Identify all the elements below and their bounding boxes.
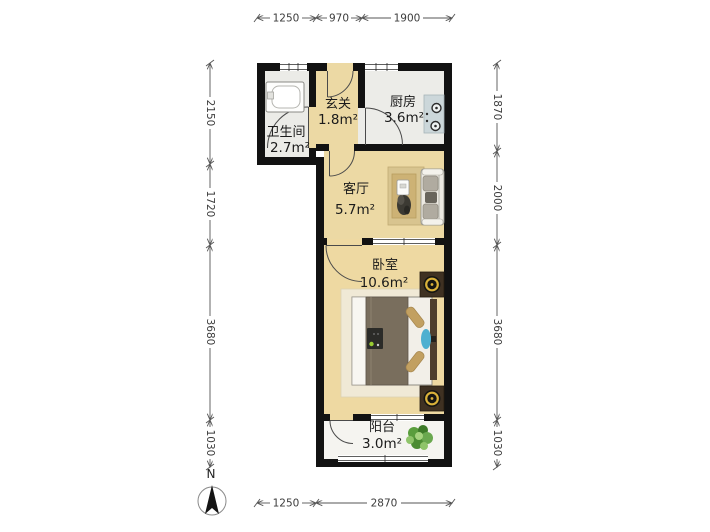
bed [352,297,437,385]
dim-left-3: 1030 [204,430,216,457]
dim-left-0: 2150 [204,100,216,127]
room-label-kitchen: 厨房 [390,94,416,110]
dim-left-2: 3680 [204,319,216,346]
dim-bottom-1: 2870 [371,498,398,510]
dim-right-3: 1030 [491,430,503,457]
floorplan-page: 卫生间 2.7m² 玄关 1.8m² 厨房 3.6m² 客厅 5.7m² 卧室 … [0,0,710,532]
dim-left-1: 1720 [204,191,216,218]
room-area-bedroom: 10.6m² [360,275,409,291]
kitchen-window [365,63,398,71]
bed-tray [367,328,383,349]
room-area-balcony: 3.0m² [362,436,402,452]
floorplan-svg: 卫生间 2.7m² 玄关 1.8m² 厨房 3.6m² 客厅 5.7m² 卧室 … [0,0,710,532]
nightstand-bottom [420,386,444,411]
dim-right-1: 2000 [491,185,503,212]
room-area-bathroom: 2.7m² [270,140,310,156]
room-label-living: 客厅 [343,181,369,197]
dimension-top: 1250 970 1900 [254,13,455,25]
lamp-icon [424,390,441,407]
entry-door-threshold [327,63,353,71]
room-area-living: 5.7m² [335,202,375,218]
room-area-entry: 1.8m² [318,112,358,128]
dimension-right: 1870 2000 3680 1030 [491,60,503,470]
kitchen-door-threshold [358,108,365,144]
room-label-bedroom: 卧室 [372,257,398,273]
bathroom-door-threshold [309,107,316,148]
compass-north-label: N [207,467,216,481]
north-compass: N [198,467,226,515]
living-bedroom-partition-window [373,238,435,245]
dimension-left: 2150 1720 3680 1030 [204,60,216,470]
room-label-balcony: 阳台 [369,420,395,435]
dim-top-1: 970 [329,13,349,25]
blue-cushion [421,329,431,349]
bathroom-window [280,63,307,71]
living-plant-icon [397,195,411,215]
room-label-entry: 玄关 [325,97,351,112]
coffee-table [397,180,409,195]
room-area-kitchen: 3.6m² [384,110,424,126]
kitchen-counter [424,95,444,133]
balcony-window [338,455,428,462]
bathtub [266,82,304,112]
dim-bottom-0: 1250 [273,498,300,510]
dimension-bottom: 1250 2870 [254,498,455,510]
dim-top-2: 1900 [394,13,421,25]
nightstand-top [420,272,444,297]
lamp-icon [424,276,441,293]
dim-right-0: 1870 [491,94,503,121]
sofa [421,169,444,225]
dim-top-0: 1250 [273,13,300,25]
room-label-bathroom: 卫生间 [266,125,305,140]
dim-right-2: 3680 [491,319,503,346]
